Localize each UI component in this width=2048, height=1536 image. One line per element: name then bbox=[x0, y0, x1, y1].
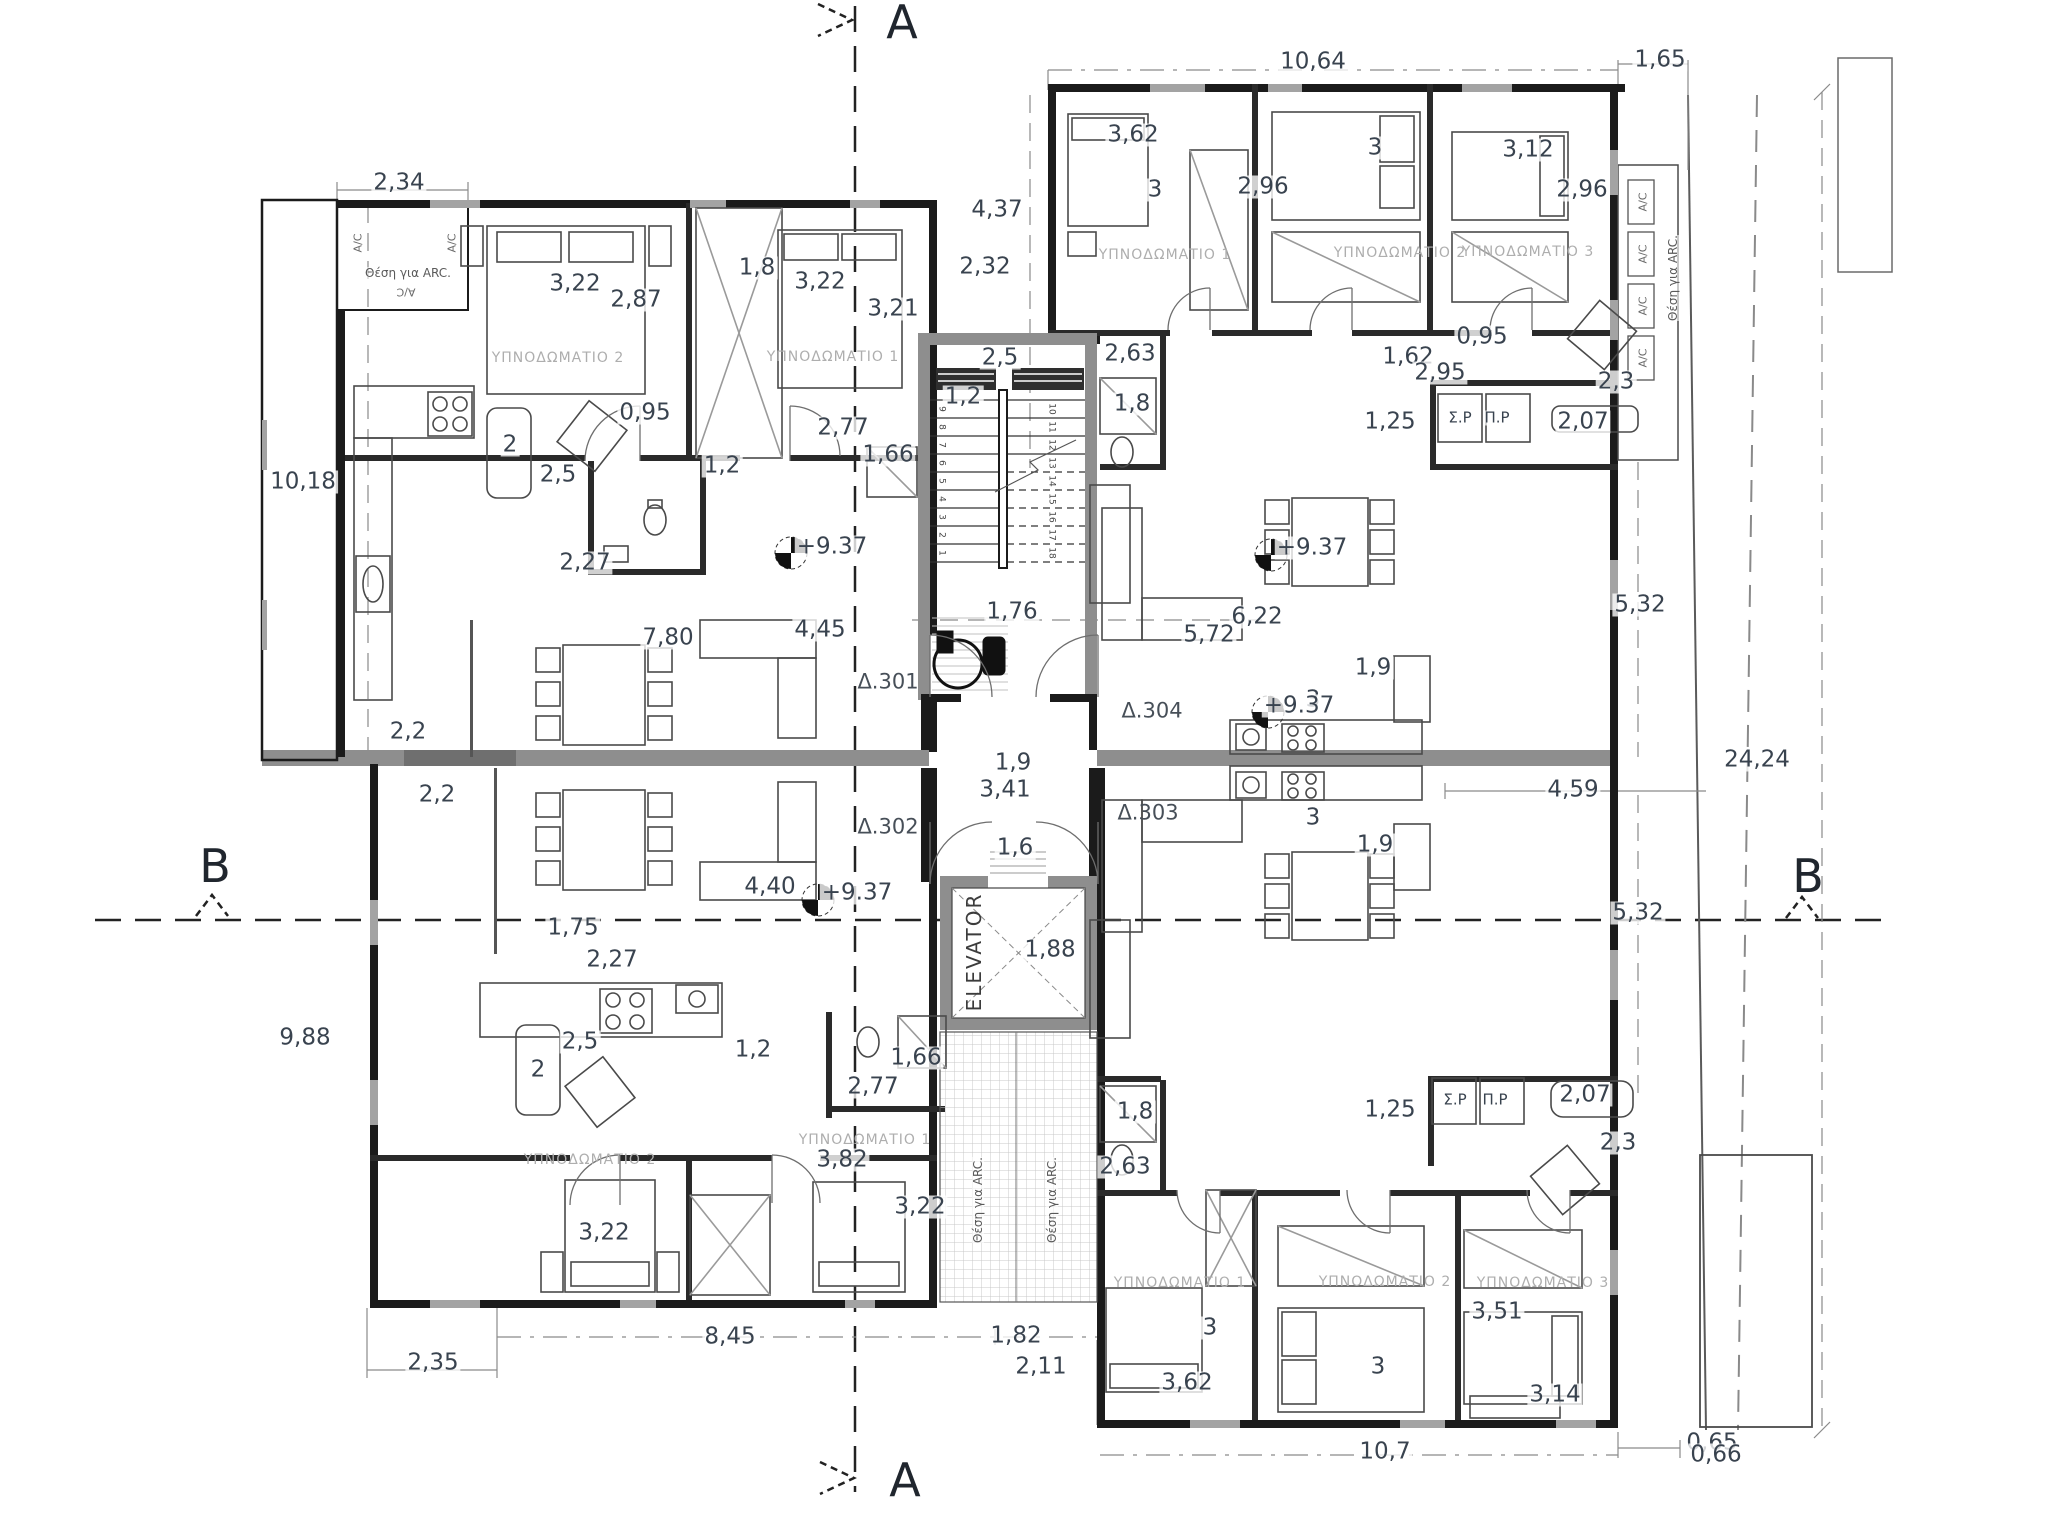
stair-step-number: 12 bbox=[1047, 439, 1056, 450]
ac-label: A/C bbox=[1638, 349, 1649, 368]
room-label: ΥΠΝΟΔΩΜΑΤΙΟ 1 bbox=[799, 1133, 932, 1147]
dim-label: 3,51 bbox=[1469, 1301, 1524, 1324]
stair-step-number: 3 bbox=[937, 514, 946, 520]
dim-label: 1,9 bbox=[1353, 657, 1394, 680]
dim-label: 2,5 bbox=[538, 464, 579, 487]
dim-label: 3 bbox=[1304, 807, 1323, 830]
dim-label: 1,75 bbox=[545, 917, 600, 940]
arc-label: Θέση για ARC. bbox=[972, 1157, 984, 1243]
stair-step-number: 13 bbox=[1047, 457, 1056, 468]
dim-label: 2,77 bbox=[845, 1076, 900, 1099]
dim-label: 9,88 bbox=[277, 1027, 332, 1050]
dim-label: 3 bbox=[1369, 1356, 1388, 1379]
dim-label: 1,82 bbox=[988, 1325, 1043, 1348]
stair-step-number: 6 bbox=[937, 460, 946, 466]
dim-label: 2,07 bbox=[1557, 1084, 1612, 1107]
room-label: ΥΠΝΟΔΩΜΑΤΙΟ 1 bbox=[767, 350, 900, 364]
dim-label: 10,7 bbox=[1357, 1441, 1412, 1464]
dim-label: 1,6 bbox=[995, 837, 1036, 860]
dim-label: 1,66 bbox=[888, 1047, 943, 1070]
appliance-label: Σ.Ρ bbox=[1442, 1093, 1467, 1108]
dim-label: 5,72 bbox=[1181, 624, 1236, 647]
dim-label: 2,3 bbox=[1596, 371, 1637, 394]
appliance-label: Σ.Ρ bbox=[1447, 411, 1472, 426]
level-label: +9.37 bbox=[820, 882, 894, 905]
room-label: ΥΠΝΟΔΩΜΑΤΙΟ 2 bbox=[524, 1153, 657, 1167]
appliance-label: Π.Ρ bbox=[1483, 411, 1510, 426]
room-label: ΥΠΝΟΔΩΜΑΤΙΟ 1 bbox=[1114, 1276, 1247, 1290]
dim-label: 3,21 bbox=[865, 298, 920, 321]
stair-step-number: 5 bbox=[937, 478, 946, 484]
dim-label: 1,2 bbox=[702, 455, 743, 478]
dim-label: 1,8 bbox=[1115, 1101, 1156, 1124]
stair-step-number: 4 bbox=[937, 496, 946, 502]
dim-label: 3,82 bbox=[814, 1149, 869, 1172]
dim-label: 2,63 bbox=[1097, 1156, 1152, 1179]
appliance-label: Π.Ρ bbox=[1481, 1093, 1508, 1108]
elevator-label: ELEVATOR bbox=[964, 893, 984, 1012]
dim-label: 3 bbox=[1201, 1317, 1220, 1340]
room-label: ΥΠΝΟΔΩΜΑΤΙΟ 2 bbox=[1319, 1275, 1452, 1289]
dim-label: 3,62 bbox=[1159, 1372, 1214, 1395]
dim-label: 1,8 bbox=[1112, 393, 1153, 416]
level-label: +9.37 bbox=[795, 536, 869, 559]
section-marker: A bbox=[886, 0, 917, 45]
dim-label: 2,87 bbox=[608, 289, 663, 312]
dim-label: 1,25 bbox=[1362, 411, 1417, 434]
dim-label: 1,9 bbox=[1355, 834, 1396, 857]
dim-label: 2,77 bbox=[815, 417, 870, 440]
dim-label: 0,66 bbox=[1688, 1444, 1743, 1467]
dim-label: 2 bbox=[529, 1059, 548, 1082]
arc-label: Θέση για ARC. bbox=[1046, 1157, 1058, 1243]
dim-label: 3,22 bbox=[792, 271, 847, 294]
dim-label: 7,80 bbox=[640, 627, 695, 650]
dim-label: 2,27 bbox=[584, 949, 639, 972]
dim-label: 2,32 bbox=[957, 256, 1012, 279]
apartment-label: Δ.301 bbox=[857, 672, 918, 693]
dim-label: 2,96 bbox=[1554, 179, 1609, 202]
ac-label: A/C bbox=[1638, 297, 1649, 316]
dim-label: 1,25 bbox=[1362, 1099, 1417, 1122]
dim-label: 1,88 bbox=[1022, 939, 1077, 962]
stair-step-number: 14 bbox=[1047, 475, 1056, 486]
level-label: +9.37 bbox=[1262, 695, 1336, 718]
section-marker: B bbox=[199, 843, 231, 889]
dim-label: 1,65 bbox=[1632, 49, 1687, 72]
dim-label: 1,2 bbox=[733, 1039, 774, 1062]
dim-label: 4,59 bbox=[1545, 779, 1600, 802]
stair-step-number: 9 bbox=[937, 406, 946, 412]
dim-label: 1,8 bbox=[737, 257, 778, 280]
dim-label: 1,76 bbox=[984, 601, 1039, 624]
dim-label: 1,2 bbox=[943, 386, 984, 409]
dim-label: 2,11 bbox=[1013, 1356, 1068, 1379]
dim-label: 3,22 bbox=[576, 1222, 631, 1245]
apartment-label: Δ.304 bbox=[1121, 701, 1182, 722]
dim-label: 5,32 bbox=[1612, 594, 1667, 617]
dim-label: 24,24 bbox=[1722, 749, 1792, 772]
ac-label: A/C bbox=[397, 287, 416, 298]
dim-label: 5,32 bbox=[1610, 902, 1665, 925]
labels-layer: AABB2,3410,183,222,871,83,223,212,324,37… bbox=[0, 0, 2048, 1536]
dim-label: 1,9 bbox=[993, 752, 1034, 775]
dim-label: 2,95 bbox=[1412, 362, 1467, 385]
stair-step-number: 8 bbox=[937, 424, 946, 430]
dim-label: 3,41 bbox=[977, 779, 1032, 802]
dim-label: 3 bbox=[1146, 179, 1165, 202]
room-label: ΥΠΝΟΔΩΜΑΤΙΟ 3 bbox=[1477, 1276, 1610, 1290]
stair-step-number: 18 bbox=[1047, 547, 1056, 558]
dim-label: 10,18 bbox=[268, 471, 338, 494]
dim-label: 2,35 bbox=[405, 1352, 460, 1375]
floor-plan: AABB2,3410,183,222,871,83,223,212,324,37… bbox=[0, 0, 2048, 1536]
stair-step-number: 2 bbox=[937, 532, 946, 538]
dim-label: 1,66 bbox=[860, 444, 915, 467]
dim-label: 3,22 bbox=[547, 273, 602, 296]
apartment-label: Δ.303 bbox=[1117, 803, 1178, 824]
dim-label: 0,95 bbox=[1454, 326, 1509, 349]
apartment-label: Δ.302 bbox=[857, 817, 918, 838]
dim-label: 4,45 bbox=[792, 619, 847, 642]
dim-label: 2,5 bbox=[980, 347, 1021, 370]
dim-label: 8,45 bbox=[702, 1326, 757, 1349]
ac-label: A/C bbox=[1638, 245, 1649, 264]
dim-label: 3 bbox=[1366, 137, 1385, 160]
arc-label: Θέση για ARC. bbox=[365, 267, 451, 279]
dim-label: 2,63 bbox=[1102, 343, 1157, 366]
dim-label: 2,07 bbox=[1555, 411, 1610, 434]
dim-label: 2,5 bbox=[560, 1031, 601, 1054]
stair-step-number: 17 bbox=[1047, 529, 1056, 540]
dim-label: 2 bbox=[501, 434, 520, 457]
ac-label: A/C bbox=[447, 234, 458, 253]
room-label: ΥΠΝΟΔΩΜΑΤΙΟ 2 bbox=[1334, 246, 1467, 260]
dim-label: 2,34 bbox=[371, 172, 426, 195]
dim-label: 2,2 bbox=[388, 721, 429, 744]
ac-label: A/C bbox=[353, 234, 364, 253]
room-label: ΥΠΝΟΔΩΜΑΤΙΟ 2 bbox=[492, 351, 625, 365]
dim-label: 3,22 bbox=[892, 1196, 947, 1219]
dim-label: 2,2 bbox=[417, 784, 458, 807]
section-marker: B bbox=[1792, 853, 1824, 899]
stair-step-number: 7 bbox=[937, 442, 946, 448]
ac-label: A/C bbox=[1638, 193, 1649, 212]
dim-label: 0,95 bbox=[617, 402, 672, 425]
dim-label: 4,40 bbox=[742, 876, 797, 899]
dim-label: 4,37 bbox=[969, 199, 1024, 222]
section-marker: A bbox=[889, 1457, 920, 1503]
dim-label: 2,27 bbox=[557, 552, 612, 575]
room-label: ΥΠΝΟΔΩΜΑΤΙΟ 1 bbox=[1099, 248, 1232, 262]
stair-step-number: 11 bbox=[1047, 421, 1056, 432]
dim-label: 2,3 bbox=[1598, 1132, 1639, 1155]
room-label: ΥΠΝΟΔΩΜΑΤΙΟ 3 bbox=[1462, 245, 1595, 259]
stair-step-number: 15 bbox=[1047, 493, 1056, 504]
stair-step-number: 16 bbox=[1047, 511, 1056, 522]
stair-step-number: 10 bbox=[1047, 403, 1056, 414]
dim-label: 2,96 bbox=[1235, 176, 1290, 199]
dim-label: 10,64 bbox=[1278, 51, 1348, 74]
dim-label: 3,12 bbox=[1500, 139, 1555, 162]
dim-label: 3,14 bbox=[1527, 1384, 1582, 1407]
dim-label: 6,22 bbox=[1229, 606, 1284, 629]
level-label: +9.37 bbox=[1275, 537, 1349, 560]
dim-label: 3,62 bbox=[1105, 124, 1160, 147]
arc-label: Θέση για ARC. bbox=[1667, 235, 1679, 321]
stair-step-number: 1 bbox=[937, 550, 946, 556]
